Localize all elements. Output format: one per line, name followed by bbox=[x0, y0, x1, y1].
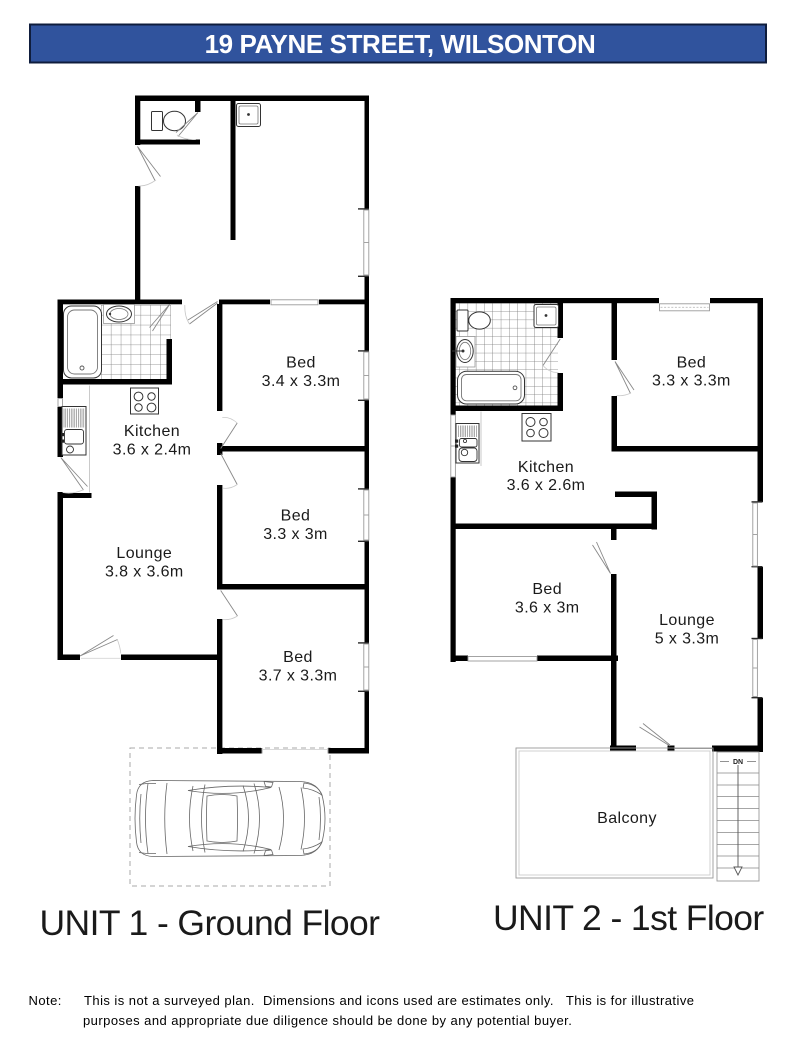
svg-text:Bed: Bed bbox=[286, 355, 316, 372]
svg-text:Kitchen: Kitchen bbox=[124, 423, 180, 440]
svg-text:Bed: Bed bbox=[283, 649, 313, 666]
svg-text:Lounge: Lounge bbox=[116, 545, 172, 562]
svg-text:3.7 x 3.3m: 3.7 x 3.3m bbox=[259, 668, 338, 685]
svg-text:3.6 x 2.4m: 3.6 x 2.4m bbox=[113, 442, 192, 459]
svg-text:Bed: Bed bbox=[677, 354, 707, 371]
svg-text:3.4 x 3.3m: 3.4 x 3.3m bbox=[262, 373, 341, 390]
svg-text:Balcony: Balcony bbox=[597, 810, 657, 827]
svg-text:UNIT 1 - Ground Floor: UNIT 1 - Ground Floor bbox=[40, 903, 381, 943]
svg-text:19 PAYNE STREET, WILSONTON: 19 PAYNE STREET, WILSONTON bbox=[205, 29, 596, 59]
svg-text:5 x 3.3m: 5 x 3.3m bbox=[655, 631, 720, 648]
svg-text:3.6 x 3m: 3.6 x 3m bbox=[515, 599, 580, 616]
svg-text:purposes and appropriate due d: purposes and appropriate due diligence s… bbox=[83, 1013, 572, 1028]
svg-text:DN: DN bbox=[733, 759, 743, 766]
svg-text:Bed: Bed bbox=[281, 508, 311, 525]
svg-text:Lounge: Lounge bbox=[659, 612, 715, 629]
svg-text:This is not a surveyed plan.: This is not a surveyed plan. Dimensions … bbox=[84, 993, 694, 1008]
svg-text:Note:: Note: bbox=[29, 993, 62, 1008]
svg-text:3.8 x 3.6m: 3.8 x 3.6m bbox=[105, 564, 184, 581]
svg-text:3.3 x 3.3m: 3.3 x 3.3m bbox=[652, 373, 731, 390]
svg-text:Kitchen: Kitchen bbox=[518, 459, 574, 476]
svg-text:3.6 x 2.6m: 3.6 x 2.6m bbox=[507, 477, 586, 494]
svg-text:UNIT 2 - 1st Floor: UNIT 2 - 1st Floor bbox=[493, 898, 764, 938]
svg-text:Bed: Bed bbox=[532, 581, 562, 598]
svg-text:3.3 x 3m: 3.3 x 3m bbox=[263, 526, 328, 543]
